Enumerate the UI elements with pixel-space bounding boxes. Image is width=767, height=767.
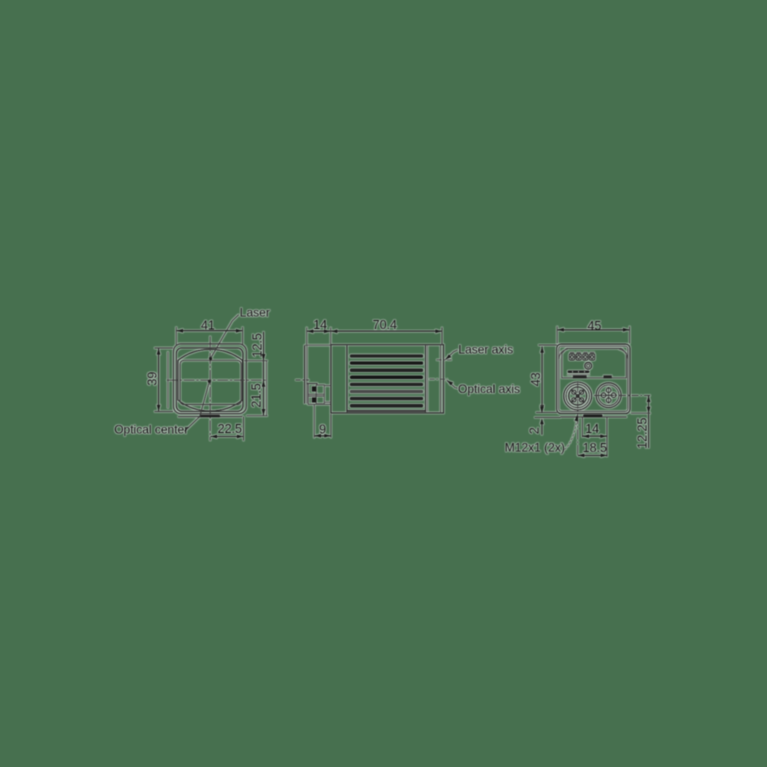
svg-text:41: 41 xyxy=(201,318,215,332)
svg-text:70.4: 70.4 xyxy=(373,318,397,332)
svg-text:12.5: 12.5 xyxy=(250,333,264,357)
svg-text:43: 43 xyxy=(529,372,543,386)
svg-text:21.5: 21.5 xyxy=(249,383,263,407)
svg-text:Laser axis: Laser axis xyxy=(458,342,513,356)
svg-text:39: 39 xyxy=(146,372,160,386)
svg-text:14: 14 xyxy=(585,422,599,436)
svg-text:12.25: 12.25 xyxy=(635,418,649,449)
svg-text:Optical axis: Optical axis xyxy=(458,382,520,396)
svg-text:2: 2 xyxy=(528,427,542,434)
svg-text:M12x1 (2x): M12x1 (2x) xyxy=(505,441,565,455)
svg-text:9: 9 xyxy=(319,422,326,436)
svg-text:Optical center: Optical center xyxy=(114,422,188,436)
svg-text:22.5: 22.5 xyxy=(218,422,242,436)
svg-text:14: 14 xyxy=(313,318,327,332)
svg-text:Laser: Laser xyxy=(240,305,270,319)
svg-text:45: 45 xyxy=(587,319,601,333)
svg-text:18.5: 18.5 xyxy=(583,441,607,455)
